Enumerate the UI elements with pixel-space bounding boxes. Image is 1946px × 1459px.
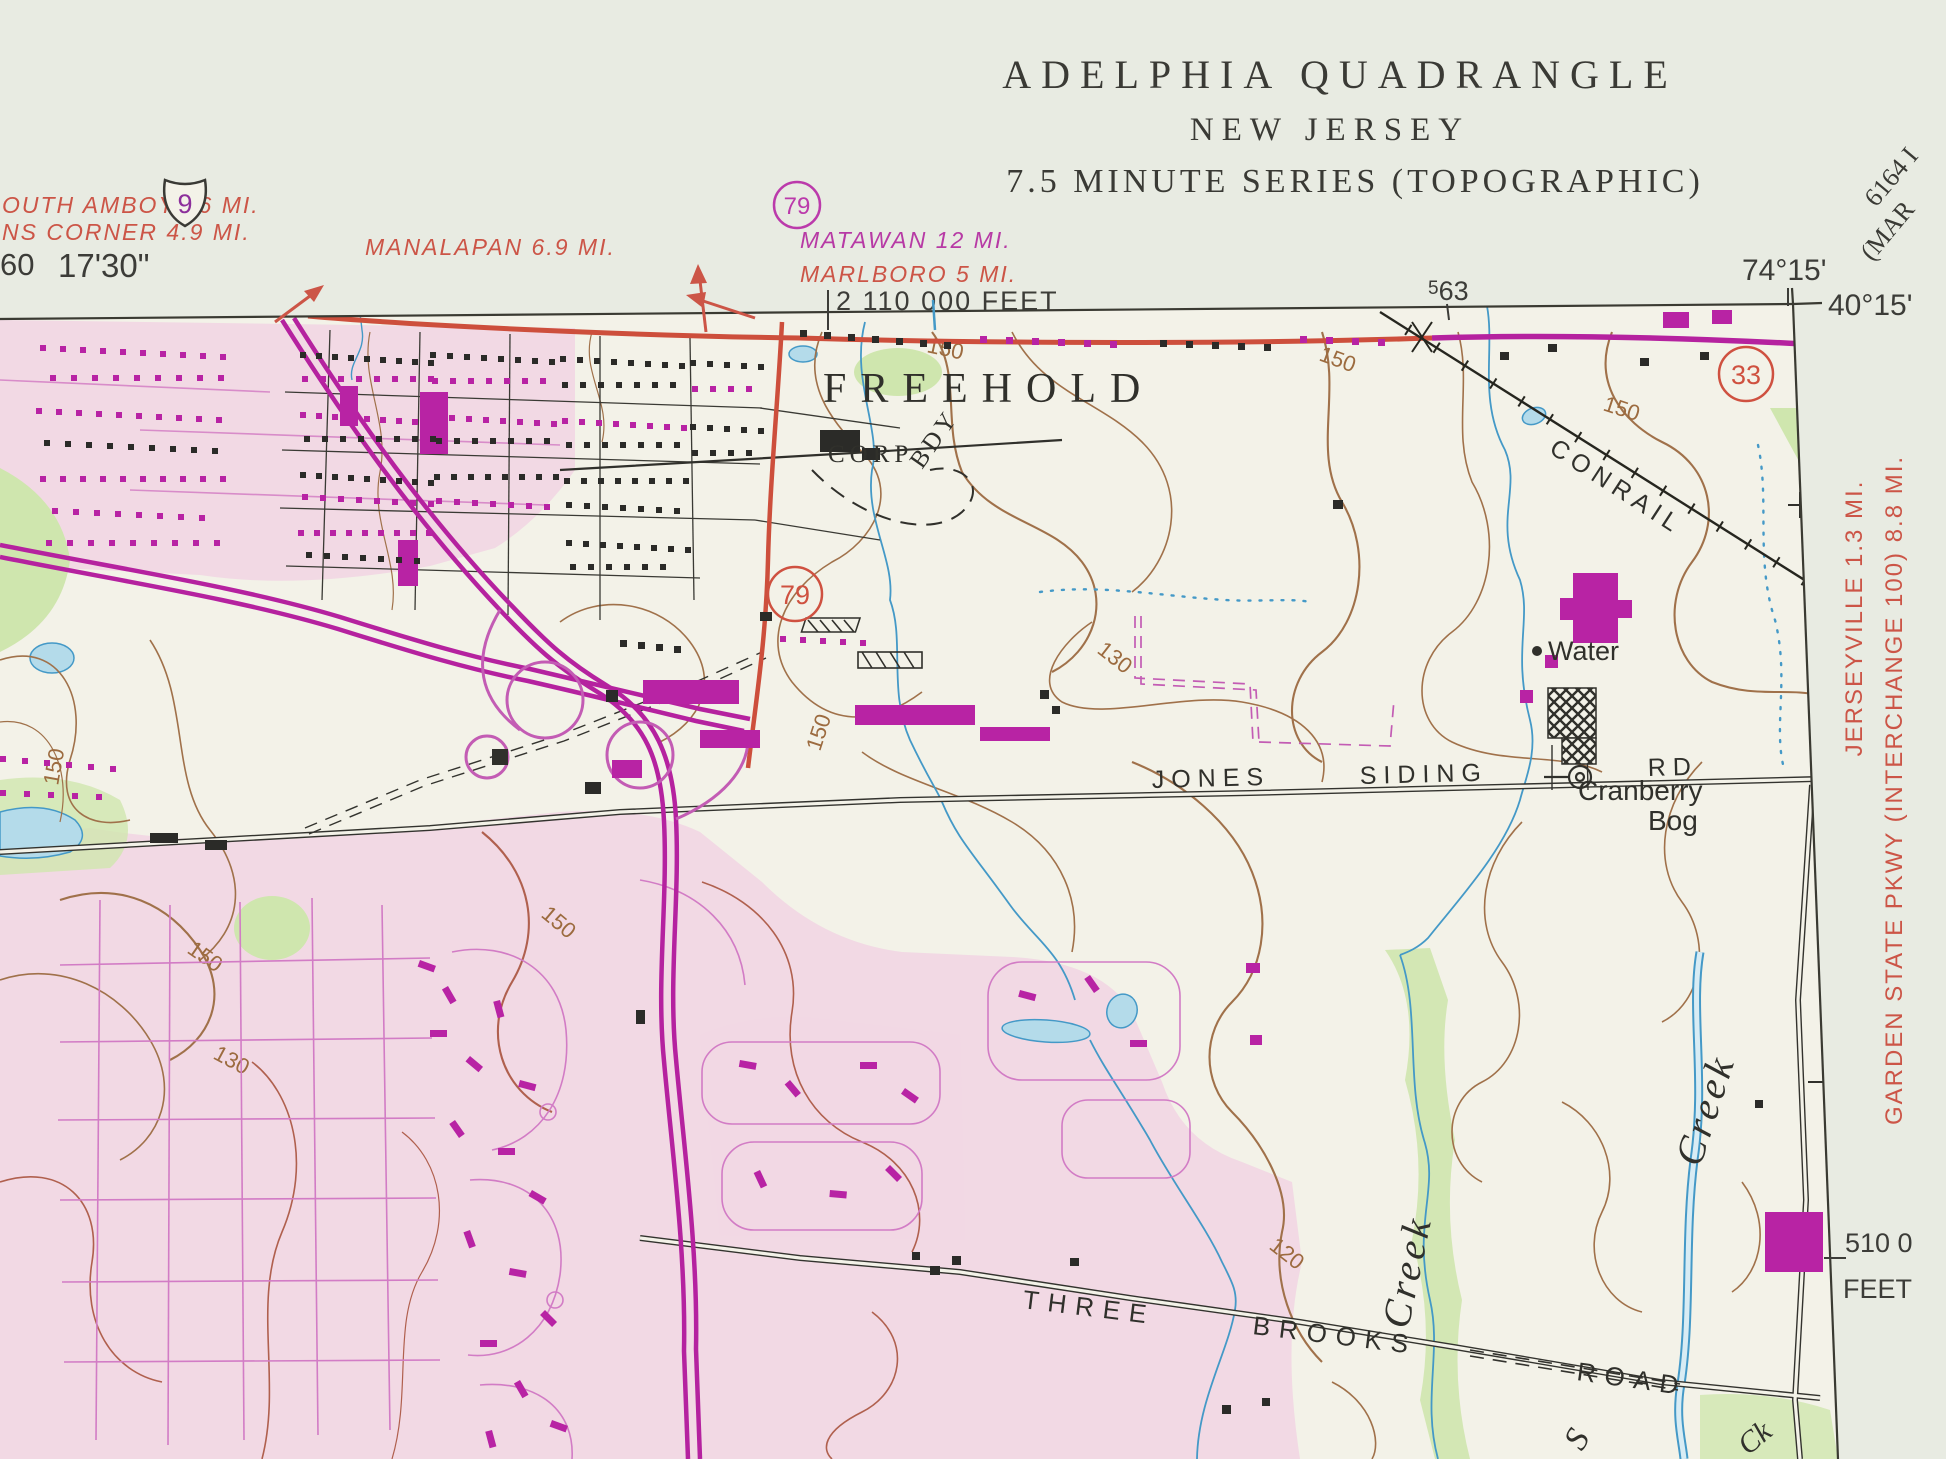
rd-label: RD (1647, 753, 1698, 782)
dest-marlboro: MARLBORO 5 MI. (800, 261, 1017, 287)
nj79-shield-top-number: 79 (784, 193, 811, 220)
crosshatch-building (1548, 688, 1596, 738)
grid-feet-top-label: 2 110 000 FEET (836, 286, 1059, 316)
nj33-shield-number: 33 (1731, 360, 1761, 390)
dest-south-amboy: OUTH AMBOY 16 MI. (2, 192, 260, 218)
latitude-label: 40°15' (1828, 289, 1912, 322)
dest-matawan: MATAWAN 12 MI. (800, 227, 1012, 253)
corp-label: CORP (828, 441, 913, 468)
dest-corner: NS CORNER 4.9 MI. (2, 219, 251, 245)
dest-jerseyville: JERSEYVILLE 1.3 MI. (1841, 480, 1868, 757)
water-point-dot (1532, 646, 1542, 656)
us9-shield-number: 9 (177, 189, 192, 219)
topo-map-sheet: 150 150 130 150 150 150 130 150 150 120 (0, 0, 1946, 1459)
left-longitude-label: 17'30" (58, 247, 149, 284)
siding-label: SIDING (1359, 759, 1488, 790)
grid-feet-right-unit: FEET (1843, 1274, 1912, 1304)
longitude-label: 74°15' (1742, 254, 1826, 287)
cranberry-label-2: Bog (1648, 805, 1698, 836)
left-grid-partial: 60 (0, 247, 34, 282)
dest-garden-state-pkwy: GARDEN STATE PKWY (INTERCHANGE 100) 8.8 … (1881, 455, 1908, 1125)
nj79-shield-mid-number: 79 (780, 580, 810, 610)
map-subtitle-state: NEW JERSEY (1190, 112, 1470, 148)
city-label-freehold: FREEHOLD (823, 366, 1154, 412)
water-label: Water (1548, 636, 1619, 666)
dest-manalapan: MANALAPAN 6.9 MI. (365, 234, 616, 260)
map-title: ADELPHIA QUADRANGLE (1002, 52, 1678, 97)
grid-feet-right-value: 510 0 (1845, 1228, 1913, 1258)
map-series: 7.5 MINUTE SERIES (TOPOGRAPHIC) (1006, 163, 1704, 200)
jones-label: JONES (1151, 763, 1270, 794)
